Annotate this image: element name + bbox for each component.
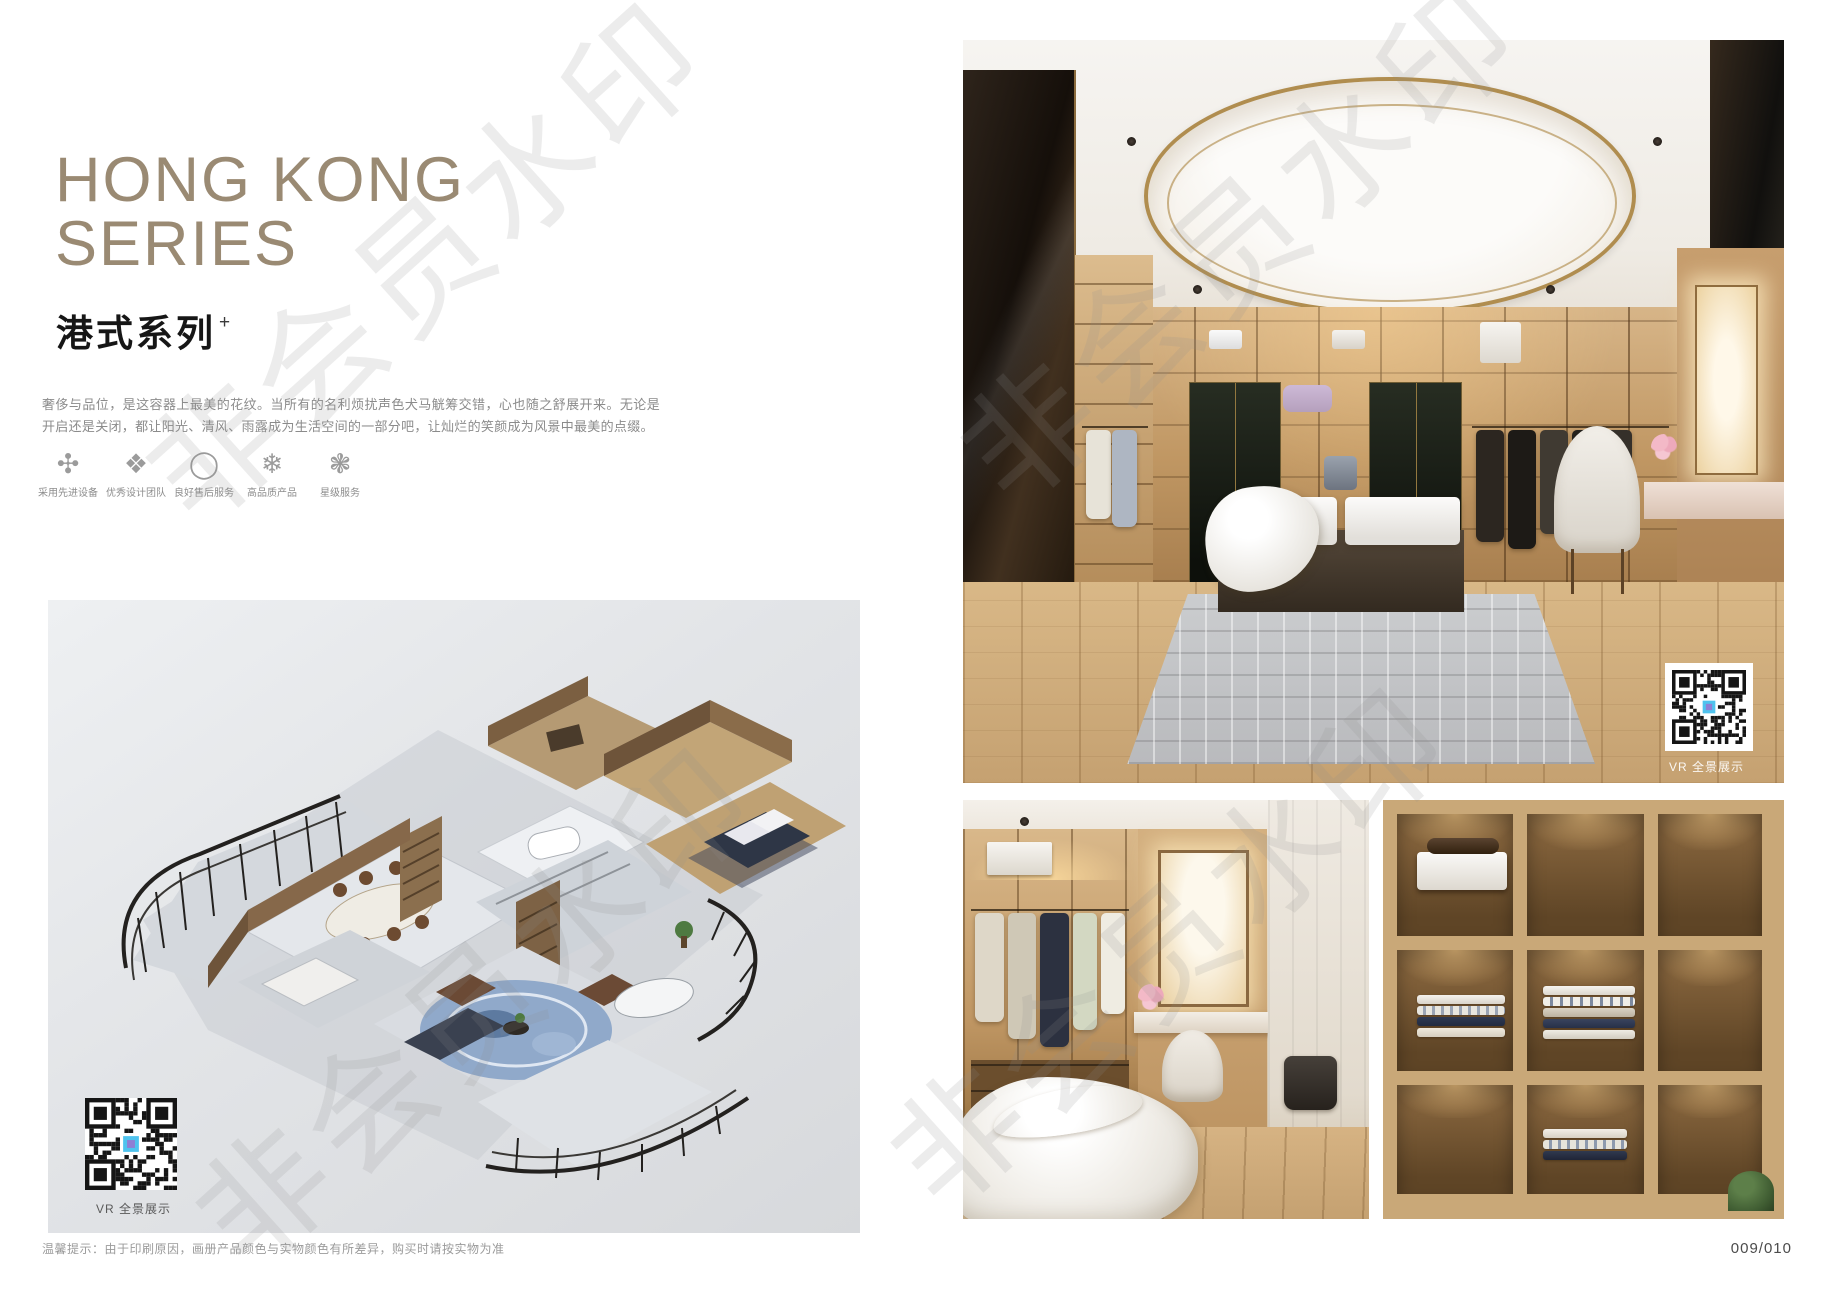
- photo-qr-caption: VR 全景展示: [1669, 758, 1744, 775]
- shelf-cubby: [1527, 814, 1643, 936]
- hanging-garment: [1508, 430, 1536, 549]
- feature-label: 采用先进设备: [36, 484, 100, 499]
- folded-item: [1543, 1030, 1635, 1039]
- folded-item: [1543, 997, 1635, 1006]
- folded-item: [1417, 1006, 1505, 1015]
- storage-box: [1480, 322, 1521, 363]
- shelf-cubby: [1658, 950, 1762, 1072]
- ceiling-spotlight: [1020, 817, 1029, 826]
- storage-box: [987, 842, 1052, 876]
- folded-item: [1543, 986, 1635, 995]
- folded-item: [1543, 1151, 1627, 1160]
- photo-qr-code: [1665, 663, 1753, 751]
- folded-item: [1417, 1028, 1505, 1037]
- pillows: [1283, 385, 1332, 412]
- hanging-rod: [1472, 426, 1669, 428]
- feature-item: ✣ 采用先进设备: [36, 448, 100, 499]
- lit-vanity-mirror: [1695, 285, 1758, 475]
- feature-label: 星级服务: [308, 484, 372, 499]
- folded-clothes-stack: [1543, 1127, 1627, 1160]
- watermark: 非会员水印: [97, 0, 743, 559]
- leather-pouf: [1284, 1056, 1337, 1110]
- chair-legs: [1571, 549, 1624, 594]
- ceiling-spotlight: [1127, 137, 1136, 146]
- flower-vase: [1651, 434, 1677, 460]
- folded-item: [1543, 1129, 1627, 1138]
- shelf-cubby: [1397, 1085, 1513, 1194]
- folded-sweater: [1324, 456, 1357, 489]
- folded-clothes: [1332, 330, 1365, 349]
- vanity-desk: [1644, 482, 1784, 519]
- page-number: 009/010: [1731, 1240, 1792, 1257]
- ceiling-spotlight: [1653, 137, 1662, 146]
- plant: [1728, 1171, 1774, 1211]
- shelf-closeup-photo: [1383, 800, 1784, 1219]
- catalog-page: HONG KONG SERIES 港式系列+ 奢侈与品位，是这容器上最美的花纹。…: [0, 0, 1836, 1307]
- pinwheel-icon: ✣: [36, 448, 100, 480]
- folded-clothes-stack: [1543, 984, 1635, 1039]
- folded-item: [1543, 1019, 1635, 1028]
- storage-case: [1417, 852, 1507, 890]
- folded-item: [1543, 1008, 1635, 1017]
- rolled-textile: [1427, 838, 1499, 854]
- folded-clothes-stack: [1417, 993, 1505, 1037]
- floorplan-qr-caption: VR 全景展示: [96, 1200, 171, 1217]
- folded-item: [1417, 1017, 1505, 1026]
- mattress: [1345, 497, 1460, 545]
- folded-item: [1417, 995, 1505, 1004]
- folded-item: [1543, 1140, 1627, 1149]
- shelf-cubby: [1658, 814, 1762, 936]
- hanging-garment: [1476, 430, 1504, 541]
